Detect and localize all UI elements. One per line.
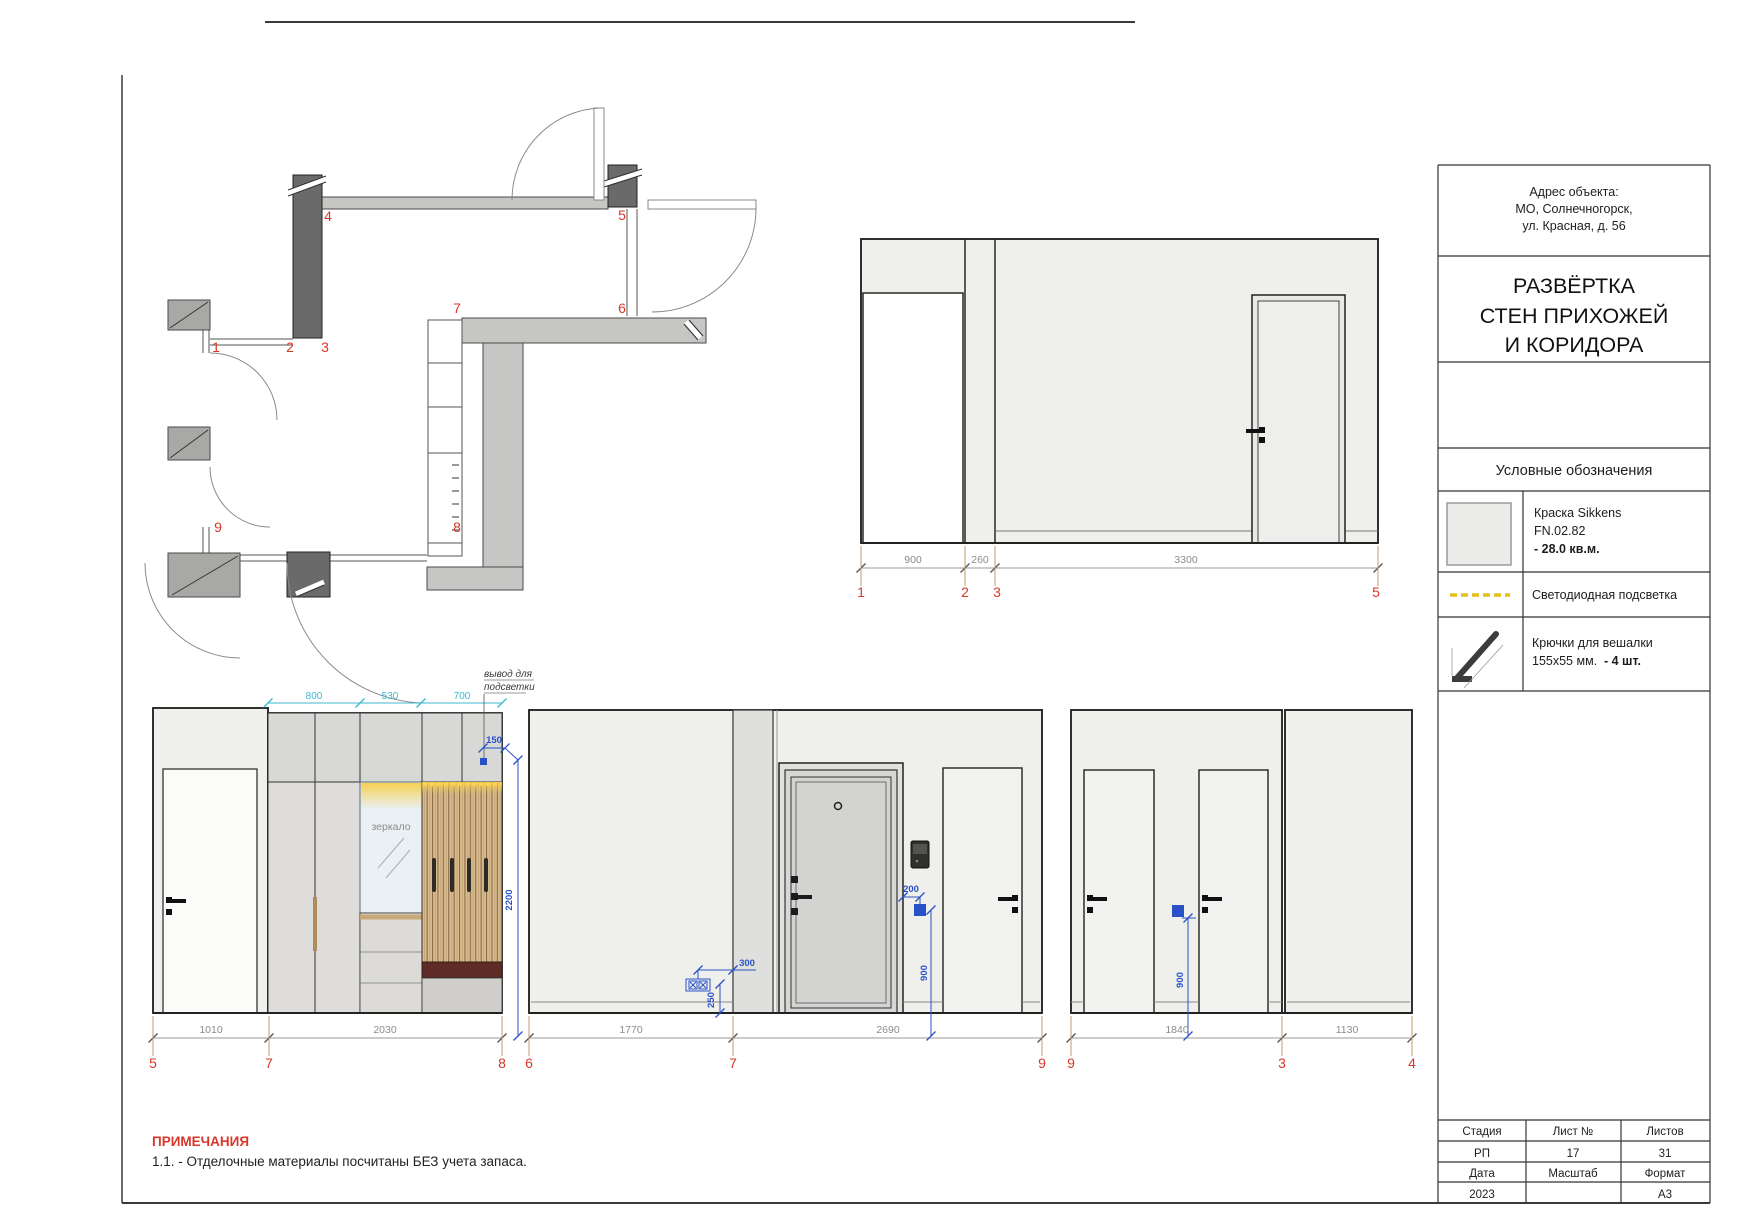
dim-900-entry: 900 [919,965,930,981]
dim-2690: 2690 [876,1024,900,1036]
legend-hooks-row: Крючки для вешалки 155х55 мм. - 4 шт. [1452,634,1653,688]
dim-800: 800 [306,691,323,702]
hall-marker-5: 5 [1372,584,1380,600]
drawing-sheet: 1 2 3 4 5 6 7 8 9 900 260 [0,0,1737,1228]
dim-1010: 1010 [199,1024,223,1036]
socket-icon [1172,905,1184,917]
stamp-format-value: А3 [1658,1189,1672,1201]
dim-530: 530 [382,691,399,702]
dim-900: 900 [904,554,922,566]
elevation-entry: 200 900 300 250 1770 2690 6 7 9 [525,710,1046,1071]
entrance-door [779,763,903,1013]
rooms-door-b [1199,770,1268,1013]
hooks-line2-bold: - 4 шт. [1604,654,1641,668]
dim-2030: 2030 [373,1024,397,1036]
notes-block: ПРИМЕЧАНИЯ 1.1. - Отделочные материалы п… [152,1134,527,1169]
entry-marker-9: 9 [1038,1055,1046,1071]
mirror-label: зеркало [371,821,410,833]
slat-panel [422,782,502,1013]
socket-icon [914,904,926,916]
wardrobe-marker-8: 8 [498,1055,506,1071]
legend-led-row: Светодиодная подсветка [1450,588,1677,602]
wardrobe-top-dims: 800 530 700 [306,691,471,702]
stamp-stage-label: Стадия [1462,1126,1501,1138]
notes-header: ПРИМЕЧАНИЯ [152,1134,249,1149]
hall-dimensions: 900 260 3300 1 2 3 5 [857,554,1380,600]
dim-1130: 1130 [1336,1024,1359,1036]
wardrobe-marker-7: 7 [265,1055,273,1071]
sheet-title-line1: РАЗВЁРТКА [1513,274,1636,298]
hook-icon [1452,634,1503,688]
paint-swatch [1447,503,1511,565]
stamp-sheets-value: 31 [1659,1148,1672,1160]
dim-1770: 1770 [619,1024,643,1036]
address-line2: ул. Красная, д. 56 [1522,219,1625,233]
wardrobe-bottom-dims: 1010 2030 5 7 8 [149,1024,506,1071]
legend-header: Условные обозначения [1496,463,1653,479]
plan-marker-6: 6 [618,300,626,316]
title-block: Адрес объекта: МО, Солнечногорск, ул. Кр… [1438,165,1710,1203]
elevation-wardrobe: зеркало 800 530 700 вывод для [149,669,535,1071]
intercom-panel [911,841,929,868]
rooms-marker-3: 3 [1278,1055,1286,1071]
stamp-sheets-label: Листов [1646,1126,1683,1138]
elevation-hall: 900 260 3300 1 2 3 5 [857,239,1380,600]
dim-250: 250 [706,992,717,1008]
stamp-date-value: 2023 [1469,1189,1495,1201]
dim-900-rooms: 900 [1175,972,1186,988]
dim-2200: 2200 [504,889,515,910]
hooks-line2: 155х55 мм. [1532,654,1597,668]
plan-marker-9: 9 [214,519,222,535]
sheet-title-line3: И КОРИДОРА [1505,333,1644,357]
wardrobe-tall-doors [268,782,360,1013]
notes-item-1: 1.1. - Отделочные материалы посчитаны БЕ… [152,1154,527,1169]
plan-marker-3: 3 [321,339,329,355]
callout-line2: подсветки [484,682,535,693]
plan-marker-2: 2 [286,339,294,355]
dim-260: 260 [971,554,989,566]
sheet-title: РАЗВЁРТКА СТЕН ПРИХОЖЕЙ И КОРИДОРА [1480,274,1669,357]
hall-door [1246,295,1345,543]
led-glow [361,783,421,809]
address-block: Адрес объекта: МО, Солнечногорск, ул. Кр… [1515,185,1632,233]
dim-200: 200 [903,884,919,895]
entry-marker-6: 6 [525,1055,533,1071]
rooms-marker-9: 9 [1067,1055,1075,1071]
led-label: Светодиодная подсветка [1532,588,1677,602]
plan-marker-7: 7 [453,300,461,316]
rooms-bottom-dims: 1840 1130 9 3 4 [1067,1024,1416,1071]
legend-paint-row: Краска Sikkens FN.02.82 - 28.0 кв.м. [1447,503,1621,565]
plan-walls-thin [203,209,637,561]
paint-line1: Краска Sikkens [1534,506,1621,520]
floor-plan: 1 2 3 4 5 6 7 8 9 [145,108,756,703]
dim-1840: 1840 [1165,1024,1189,1036]
plan-markers: 1 2 3 4 5 6 7 8 9 [212,207,626,535]
stamp-table: Стадия Лист № Листов РП 17 31 Дата Масшт… [1462,1126,1686,1201]
stamp-sheetno-value: 17 [1567,1148,1580,1160]
hall-marker-1: 1 [857,584,865,600]
rooms-marker-4: 4 [1408,1055,1416,1071]
dim-700: 700 [454,691,471,702]
plan-marker-1: 1 [212,339,220,355]
rooms-door-a [1084,770,1154,1013]
wardrobe-wall-door [163,769,257,1013]
sheet-title-line2: СТЕН ПРИХОЖЕЙ [1480,303,1669,328]
hall-marker-2: 2 [961,584,969,600]
callout-line1: вывод для [484,669,533,680]
plan-walls-light [322,197,706,590]
bench [422,962,502,978]
wardrobe-handle [313,897,317,951]
dim-300: 300 [739,958,755,969]
hooks-line1: Крючки для вешалки [1532,636,1653,650]
entry-interior-door [943,768,1022,1013]
mirror-niche: зеркало [360,782,422,1013]
entry-bottom-dims: 1770 2690 6 7 9 [525,1024,1046,1071]
dim-150: 150 [486,735,502,746]
plan-marker-8: 8 [453,519,461,535]
address-label: Адрес объекта: [1529,185,1618,199]
plan-marker-4: 4 [324,208,332,224]
hall-opening [863,293,963,543]
hall-marker-3: 3 [993,584,1001,600]
address-line1: МО, Солнечногорск, [1515,202,1632,216]
stamp-format-label: Формат [1645,1168,1687,1180]
wardrobe-top-cabinets [268,713,502,782]
stamp-scale-label: Масштаб [1548,1168,1598,1180]
stamp-stage-value: РП [1474,1148,1490,1160]
wardrobe-marker-5: 5 [149,1055,157,1071]
paint-line3: - 28.0 кв.м. [1534,542,1600,556]
paint-line2: FN.02.82 [1534,524,1585,538]
elevation-rooms: 900 1840 1130 9 3 4 [1067,710,1416,1071]
dim-3300: 3300 [1174,554,1198,566]
stamp-sheetno-label: Лист № [1553,1126,1594,1138]
stamp-date-label: Дата [1469,1168,1495,1180]
led-outlet-point [480,758,487,765]
entry-marker-7: 7 [729,1055,737,1071]
plan-marker-5: 5 [618,207,626,223]
